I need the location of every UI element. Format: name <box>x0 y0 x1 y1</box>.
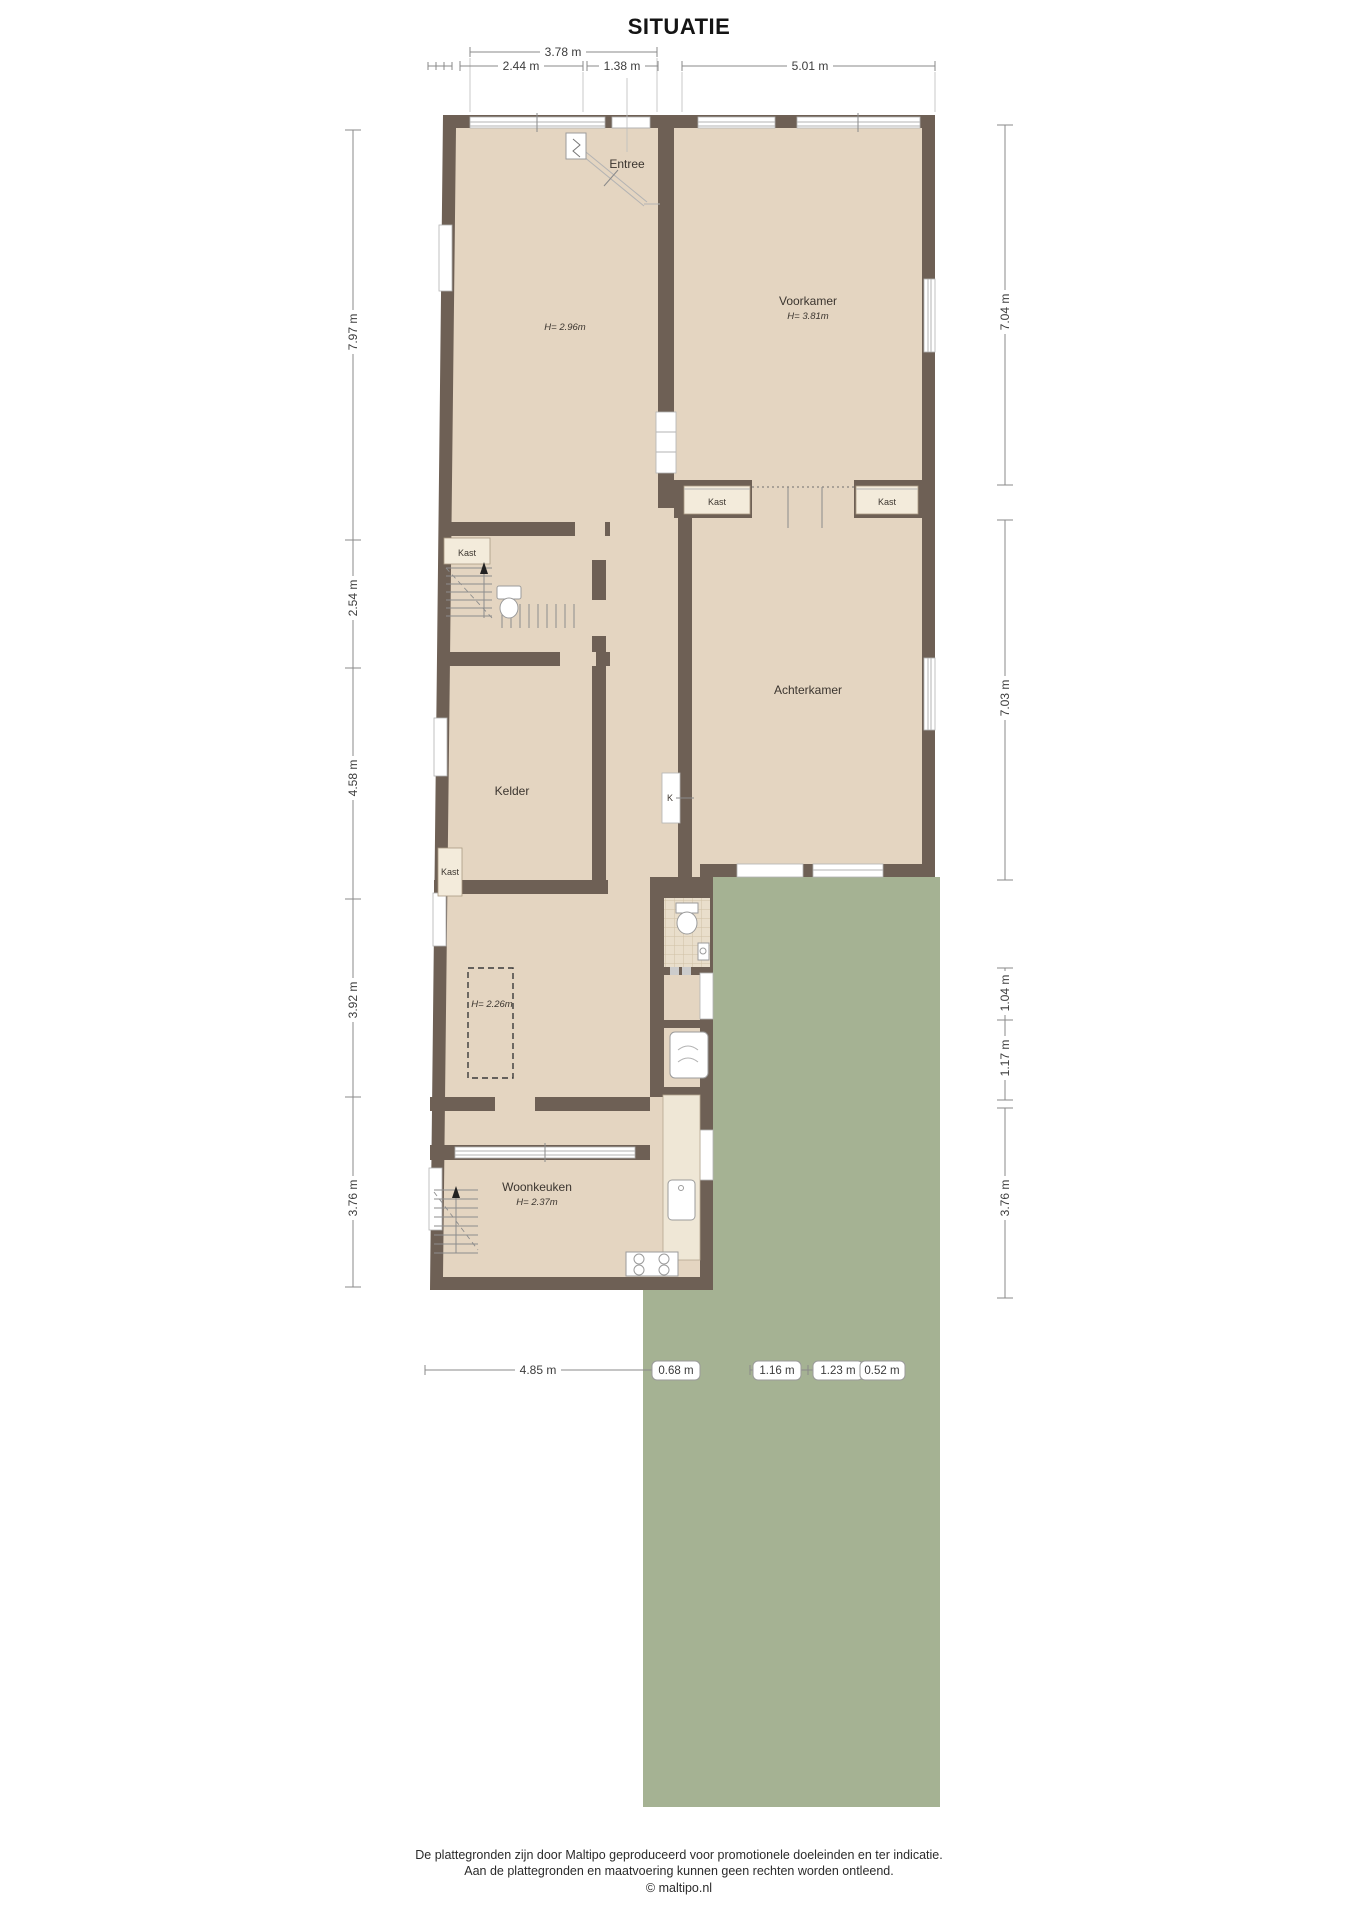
kitchen-counter <box>663 1095 700 1260</box>
door-kitchen-garden <box>700 1130 713 1180</box>
height-label-zone-low: H= 2.26m <box>471 999 513 1010</box>
dim-bottom-1-16: 1.16 m <box>753 1361 801 1380</box>
closet-label-ensuite-left: Kast <box>708 497 727 507</box>
page: SITUATIE <box>0 0 1358 1920</box>
window-kelder-left <box>434 718 447 776</box>
svg-text:7.04 m: 7.04 m <box>998 294 1012 331</box>
dim-left-3-92: 3.92 m <box>345 978 360 1022</box>
dim-left-7-97: 7.97 m <box>345 310 360 354</box>
footer: De plattegronden zijn door Maltipo gepro… <box>0 1847 1358 1896</box>
dim-bottom-1-23: 1.23 m <box>813 1361 863 1380</box>
door-corridor <box>592 600 606 636</box>
wall-zone-bottom <box>430 1097 650 1111</box>
svg-text:7.03 m: 7.03 m <box>998 680 1012 717</box>
dim-top-5-01: 5.01 m <box>682 59 935 73</box>
height-label-voorkamer: H= 3.81m <box>787 311 829 322</box>
window-voorkamer-right <box>924 279 935 352</box>
dim-top-minor-marks <box>428 62 452 70</box>
window-zone-left <box>433 893 446 946</box>
wc-door-mark <box>670 967 679 975</box>
dim-right-3-76: 3.76 m <box>997 1176 1012 1220</box>
svg-text:0.68 m: 0.68 m <box>658 1365 693 1377</box>
svg-text:4.58 m: 4.58 m <box>346 760 360 797</box>
dim-bottom-0-52: 0.52 m <box>860 1361 905 1380</box>
room-label-voorkamer: Voorkamer <box>779 294 837 308</box>
room-label-kelder: Kelder <box>495 784 530 798</box>
dim-top-3-78: 3.78 m <box>470 45 657 59</box>
svg-text:0.52 m: 0.52 m <box>864 1365 899 1377</box>
dim-bottom-4-85: 4.85 m <box>425 1363 652 1377</box>
room-label-achterkamer: Achterkamer <box>774 683 842 697</box>
dim-right-7-03: 7.03 m <box>997 676 1012 720</box>
window-hall-voorkamer <box>656 412 676 473</box>
door-garden-back <box>700 973 713 1019</box>
footer-line-3: © maltipo.nl <box>0 1880 1358 1896</box>
door-achterkamer-garden <box>737 864 803 877</box>
closet-label-kelder: Kast <box>441 867 460 877</box>
svg-text:7.97 m: 7.97 m <box>346 314 360 351</box>
wc-room <box>664 898 710 975</box>
door-zone <box>495 1097 535 1111</box>
svg-text:4.85 m: 4.85 m <box>520 1363 557 1377</box>
dim-right-1-04: 1.04 m <box>997 971 1012 1015</box>
dim-left-3-76: 3.76 m <box>345 1176 360 1220</box>
dim-right-7-04: 7.04 m <box>997 290 1012 334</box>
dim-top-2-44: 2.44 m <box>460 59 583 73</box>
ensuite-opening <box>752 480 854 518</box>
wall-shower-top <box>650 1020 713 1028</box>
window-achterkamer-right <box>924 658 935 730</box>
room-label-entree: Entree <box>609 157 645 171</box>
closet-label-meter: K <box>667 793 673 803</box>
svg-text:3.92 m: 3.92 m <box>346 982 360 1019</box>
svg-text:2.54 m: 2.54 m <box>346 580 360 617</box>
door-entree <box>612 117 650 128</box>
room-label-woonkeuken: Woonkeuken <box>502 1180 572 1194</box>
door-kelder <box>560 652 596 666</box>
dim-right-1-17: 1.17 m <box>997 1036 1012 1080</box>
svg-text:3.76 m: 3.76 m <box>998 1180 1012 1217</box>
floorplan-svg: Kast Kast Kast Kast <box>0 0 1358 1920</box>
svg-text:1.04 m: 1.04 m <box>998 975 1012 1012</box>
svg-text:1.16 m: 1.16 m <box>759 1365 794 1377</box>
shower-room <box>670 1032 708 1078</box>
dim-left-2-54: 2.54 m <box>345 576 360 620</box>
height-label-front-room: H= 2.96m <box>544 322 586 333</box>
dim-left-4-58: 4.58 m <box>345 756 360 800</box>
wall-wc-left <box>650 890 664 1097</box>
svg-text:3.78 m: 3.78 m <box>545 45 582 59</box>
window-front-left-wall <box>439 225 452 291</box>
svg-text:2.44 m: 2.44 m <box>503 59 540 73</box>
meter-box <box>566 133 586 159</box>
svg-text:1.23 m: 1.23 m <box>820 1365 855 1377</box>
wc-door-mark2 <box>682 967 691 975</box>
svg-text:1.38 m: 1.38 m <box>604 59 641 73</box>
stove <box>626 1252 678 1276</box>
dimensions-top: 3.78 m 2.44 m 1.38 m <box>428 45 935 112</box>
dim-top-1-38: 1.38 m <box>587 59 658 73</box>
dim-bottom-0-68: 0.68 m <box>652 1361 700 1380</box>
dimensions-bottom: 4.85 m 0.68 m 1.16 m 1.23 m 0.52 m <box>425 1361 905 1380</box>
svg-text:3.76 m: 3.76 m <box>346 1180 360 1217</box>
footer-line-1: De plattegronden zijn door Maltipo gepro… <box>0 1847 1358 1863</box>
svg-text:5.01 m: 5.01 m <box>792 59 829 73</box>
dimensions-right: 7.04 m 7.03 m 1.04 m 1.17 m 3.76 m <box>997 125 1013 1298</box>
toilet-wc <box>677 912 697 934</box>
dimensions-left: 7.97 m 2.54 m 4.58 m 3.92 m 3.76 m <box>345 130 361 1287</box>
door-frontroom <box>575 522 605 536</box>
footer-line-2: Aan de plattegronden en maatvoering kunn… <box>0 1863 1358 1879</box>
closet-label-hall: Kast <box>458 548 477 558</box>
svg-text:1.17 m: 1.17 m <box>998 1040 1012 1077</box>
height-label-woonkeuken: H= 2.37m <box>516 1197 558 1208</box>
closet-label-ensuite-right: Kast <box>878 497 897 507</box>
shower <box>670 1032 708 1078</box>
